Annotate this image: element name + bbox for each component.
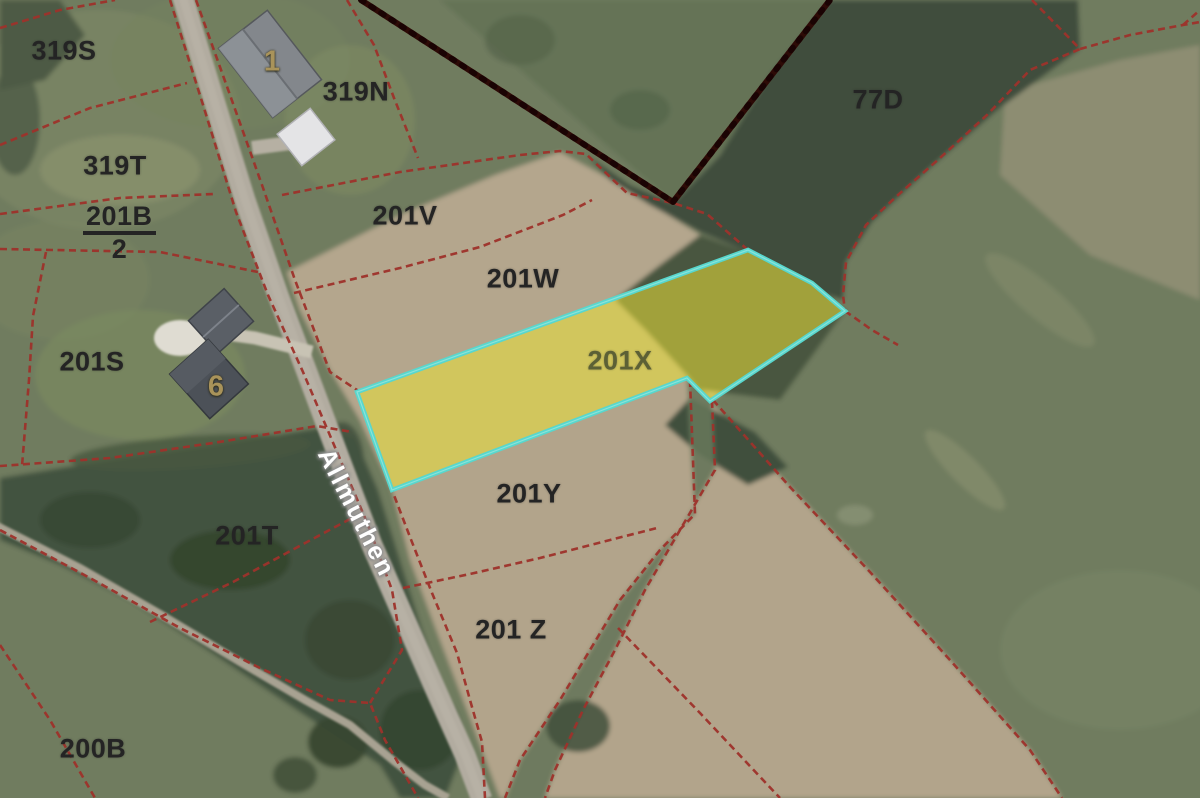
cadastral-map-viewport[interactable]: 319S 319N 319T 201B 2 201S 201V 201W 201… — [0, 0, 1200, 798]
parcel-label-201V[interactable]: 201V — [372, 201, 437, 232]
parcel-label-319N[interactable]: 319N — [323, 77, 390, 108]
parcel-label-201B-2[interactable]: 201B 2 — [83, 203, 156, 263]
parcel-label-201Y[interactable]: 201Y — [496, 479, 561, 510]
parcel-label-201T[interactable]: 201T — [215, 521, 279, 552]
aerial-basemap — [0, 0, 1200, 798]
parcel-label-201S[interactable]: 201S — [59, 347, 124, 378]
parcel-label-77D[interactable]: 77D — [852, 85, 903, 116]
parcel-label-201B-denominator: 2 — [112, 235, 127, 263]
parcel-label-201X[interactable]: 201X — [587, 346, 652, 377]
parcel-label-200B[interactable]: 200B — [60, 734, 127, 765]
parcel-label-201Z[interactable]: 201 Z — [475, 615, 547, 646]
parcel-label-201W[interactable]: 201W — [487, 264, 560, 295]
parcel-label-319S[interactable]: 319S — [31, 36, 96, 67]
parcel-label-319T[interactable]: 319T — [83, 151, 147, 182]
parcel-label-201B-numerator: 201B — [83, 203, 156, 235]
